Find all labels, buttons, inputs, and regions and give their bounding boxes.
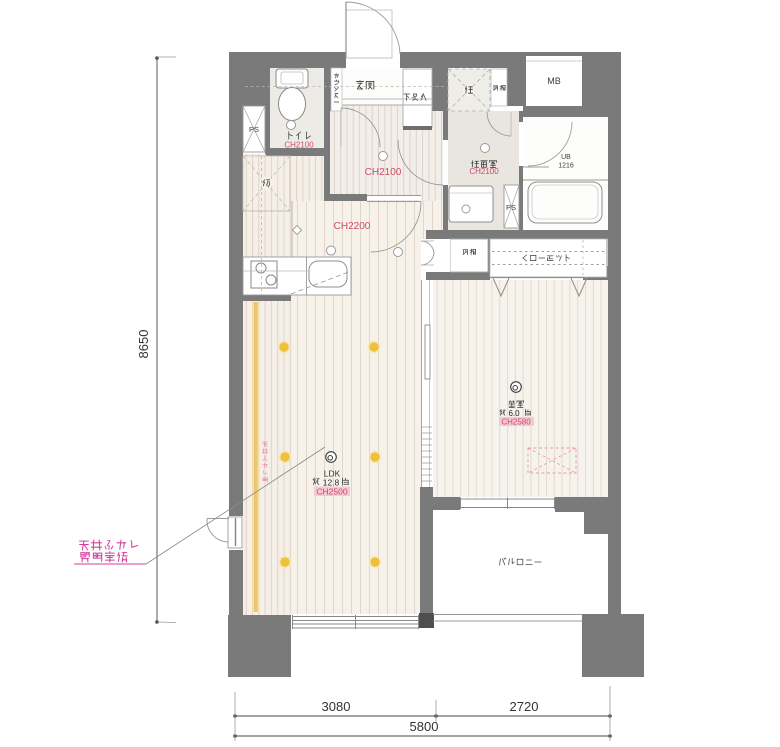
svg-text:MB: MB bbox=[547, 76, 561, 86]
svg-text:CH2100: CH2100 bbox=[284, 141, 314, 150]
svg-text:1216: 1216 bbox=[558, 163, 574, 170]
svg-text:CH2100: CH2100 bbox=[365, 167, 402, 178]
svg-text:UB: UB bbox=[561, 154, 571, 161]
svg-text:PS: PS bbox=[506, 203, 516, 212]
svg-text:CH2500: CH2500 bbox=[316, 487, 347, 497]
svg-text:PS: PS bbox=[249, 125, 259, 134]
svg-text:3080: 3080 bbox=[322, 699, 351, 714]
svg-text:CH2580: CH2580 bbox=[501, 418, 531, 427]
svg-text:CH2200: CH2200 bbox=[334, 221, 371, 232]
svg-text:8650: 8650 bbox=[136, 330, 151, 359]
svg-text:2720: 2720 bbox=[510, 699, 539, 714]
svg-text:CH2100: CH2100 bbox=[469, 167, 499, 176]
svg-text:5800: 5800 bbox=[410, 719, 439, 734]
